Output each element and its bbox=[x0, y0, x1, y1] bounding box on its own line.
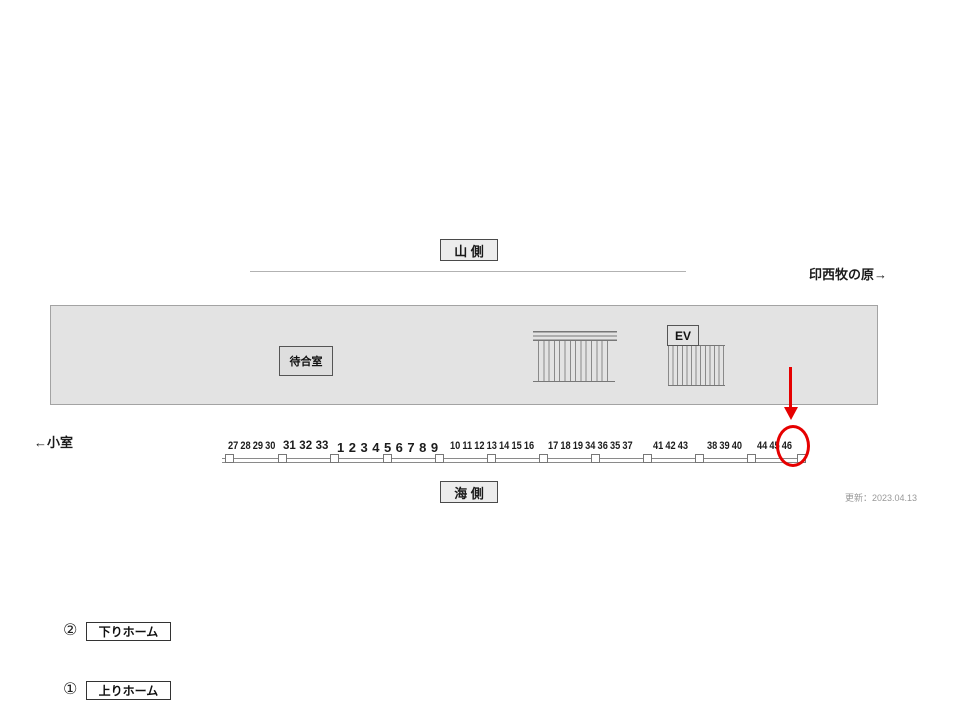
ad-number-group: 17181934363537 bbox=[548, 440, 633, 452]
up-platform-label: 上りホーム bbox=[86, 681, 171, 700]
ad-number: 11 bbox=[462, 440, 472, 452]
ad-number: 14 bbox=[499, 440, 509, 452]
ad-number: 2 bbox=[349, 440, 356, 455]
ad-number: 36 bbox=[598, 440, 608, 452]
ad-number-group: 313233 bbox=[283, 440, 328, 452]
station-platform-diagram: 山 側 印西牧の原→ ② 下りホーム ① 上りホーム 待合室 EV ←小室 27… bbox=[0, 0, 960, 720]
ad-number-group: 414243 bbox=[653, 440, 688, 452]
platform-area: ② 下りホーム ① 上りホーム 待合室 EV bbox=[50, 305, 878, 405]
ad-number: 34 bbox=[585, 440, 595, 452]
direction-inzai-makinohara: 印西牧の原→ bbox=[809, 264, 887, 283]
edge-square-marker bbox=[591, 454, 600, 463]
updated-date: 更新：2023.04.13 bbox=[845, 491, 917, 504]
elevator-label: EV bbox=[667, 325, 699, 346]
ad-number: 5 bbox=[384, 440, 391, 455]
ad-number: 28 bbox=[240, 440, 250, 452]
ad-number: 4 bbox=[372, 440, 379, 455]
stairs-bottom-line bbox=[533, 381, 615, 382]
ad-number: 6 bbox=[396, 440, 403, 455]
ad-number: 12 bbox=[474, 440, 484, 452]
track-1-badge: ① bbox=[63, 681, 77, 698]
ad-number: 38 bbox=[707, 440, 717, 452]
track-2-badge: ② bbox=[63, 622, 77, 639]
ad-number-row: 2728293031323312345678910111213141516171… bbox=[0, 440, 960, 456]
ad-number: 33 bbox=[316, 440, 329, 452]
ad-number-group: 27282930 bbox=[228, 440, 275, 452]
ad-number: 37 bbox=[622, 440, 632, 452]
platform-edge-line bbox=[222, 458, 806, 463]
edge-square-marker bbox=[225, 454, 234, 463]
ad-number-group: 383940 bbox=[707, 440, 742, 452]
edge-square-marker bbox=[539, 454, 548, 463]
ad-number: 30 bbox=[265, 440, 275, 452]
ad-number: 15 bbox=[511, 440, 521, 452]
sea-side-label: 海 側 bbox=[440, 481, 498, 503]
waiting-room-box: 待合室 bbox=[279, 346, 333, 376]
edge-square-marker bbox=[487, 454, 496, 463]
ad-number: 16 bbox=[524, 440, 534, 452]
edge-square-marker bbox=[747, 454, 756, 463]
top-divider-line bbox=[250, 271, 686, 272]
edge-square-marker bbox=[383, 454, 392, 463]
ad-number-group: 10111213141516 bbox=[450, 440, 534, 452]
highlight-arrow-shaft bbox=[789, 367, 792, 409]
ad-number: 3 bbox=[360, 440, 367, 455]
edge-square-marker bbox=[330, 454, 339, 463]
edge-square-marker bbox=[278, 454, 287, 463]
edge-square-marker bbox=[695, 454, 704, 463]
ad-number: 32 bbox=[299, 440, 312, 452]
edge-square-marker bbox=[643, 454, 652, 463]
ad-number-group: 123456789 bbox=[337, 440, 438, 455]
ad-number: 7 bbox=[407, 440, 414, 455]
highlight-arrow-head-icon bbox=[784, 407, 798, 420]
ad-number: 13 bbox=[487, 440, 497, 452]
ad-number: 19 bbox=[573, 440, 583, 452]
stairs-structure bbox=[533, 331, 617, 383]
ad-number: 44 bbox=[757, 440, 767, 452]
ad-number: 10 bbox=[450, 440, 460, 452]
edge-square-marker bbox=[435, 454, 444, 463]
ad-number: 18 bbox=[560, 440, 570, 452]
ad-number: 17 bbox=[548, 440, 558, 452]
down-platform-label: 下りホーム bbox=[86, 622, 171, 641]
ad-number: 9 bbox=[431, 440, 438, 455]
ad-number: 31 bbox=[283, 440, 296, 452]
mountain-side-label: 山 側 bbox=[440, 239, 498, 261]
ad-number: 41 bbox=[653, 440, 663, 452]
ad-number: 29 bbox=[253, 440, 263, 452]
ad-number: 27 bbox=[228, 440, 238, 452]
highlight-circle-46 bbox=[776, 425, 810, 467]
ad-number: 8 bbox=[419, 440, 426, 455]
stairs-top-lines bbox=[533, 331, 617, 341]
ad-number: 35 bbox=[610, 440, 620, 452]
ad-number: 42 bbox=[665, 440, 675, 452]
ad-number: 40 bbox=[732, 440, 742, 452]
ad-number: 39 bbox=[719, 440, 729, 452]
ad-number: 1 bbox=[337, 440, 344, 455]
elevator-stairs-hatch bbox=[668, 345, 725, 386]
stairs-hatch bbox=[538, 341, 611, 381]
ad-number: 43 bbox=[678, 440, 688, 452]
